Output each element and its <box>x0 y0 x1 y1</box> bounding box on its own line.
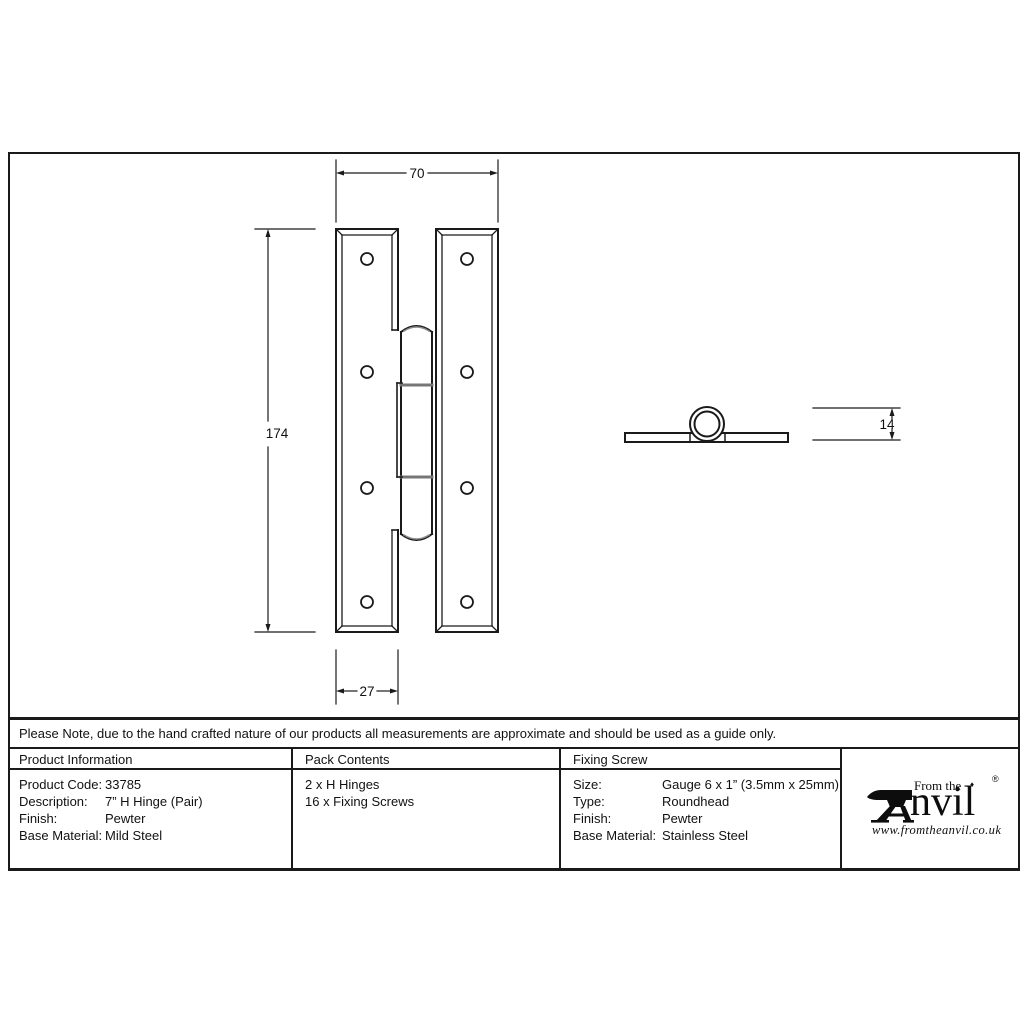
column-header-product-information: Product Information <box>19 752 132 767</box>
spec-table: Product Information Pack Contents Fixing… <box>10 747 1018 869</box>
row-label: Base Material: <box>19 828 102 843</box>
anvil-icon <box>866 786 914 824</box>
row-value: Roundhead <box>662 794 729 809</box>
dim-height-174: 174 <box>255 229 315 632</box>
dim-leaf-27: 27 <box>336 650 398 704</box>
hinge-barrel <box>397 326 432 540</box>
dim-height-label: 174 <box>266 426 289 441</box>
brand-url: www.fromtheanvil.co.uk <box>872 823 1001 838</box>
column-divider <box>840 749 842 869</box>
dim-width-70: 70 <box>336 160 498 222</box>
column-divider <box>559 749 561 869</box>
sheet-frame: 70 174 <box>8 152 1020 871</box>
front-view-hinge <box>336 229 498 632</box>
dim-thickness-label: 14 <box>879 417 895 432</box>
row-label: Size: <box>573 777 602 792</box>
row-value: Pewter <box>662 811 702 826</box>
header-underline <box>10 768 842 770</box>
column-header-fixing-screw: Fixing Screw <box>573 752 647 767</box>
column-header-pack-contents: Pack Contents <box>305 752 390 767</box>
row-value: Gauge 6 x 1” (3.5mm x 25mm) <box>662 777 839 792</box>
pack-item: 16 x Fixing Screws <box>305 794 414 809</box>
side-view-hinge <box>625 407 788 442</box>
dim-leaf-label: 27 <box>359 684 374 699</box>
row-label: Base Material: <box>573 828 656 843</box>
note-bar: Please Note, due to the hand crafted nat… <box>10 717 1018 747</box>
dim-width-label: 70 <box>409 166 424 181</box>
brand-name-rest: nvil <box>910 781 975 823</box>
column-divider <box>291 749 293 869</box>
row-label: Finish: <box>573 811 611 826</box>
spec-sheet-page: { "note": { "text": "Please Note, due to… <box>0 0 1024 1024</box>
registered-mark: ® <box>992 774 999 784</box>
row-label: Product Code: <box>19 777 102 792</box>
brand-logo: From the ♦ ® nvil www.fromtheanvil.co.uk <box>850 749 1018 871</box>
row-label: Description: <box>19 794 88 809</box>
row-label: Type: <box>573 794 605 809</box>
pack-item: 2 x H Hinges <box>305 777 379 792</box>
row-value: 7” H Hinge (Pair) <box>105 794 203 809</box>
dim-thickness-14: 14 <box>813 408 900 440</box>
row-label: Finish: <box>19 811 57 826</box>
dimension-annotations: 70 174 <box>255 160 900 704</box>
row-value: 33785 <box>105 777 141 792</box>
note-text: Please Note, due to the hand crafted nat… <box>19 726 776 741</box>
hinge-technical-drawing: 70 174 <box>10 154 1018 717</box>
row-value: Pewter <box>105 811 145 826</box>
row-value: Stainless Steel <box>662 828 748 843</box>
row-value: Mild Steel <box>105 828 162 843</box>
